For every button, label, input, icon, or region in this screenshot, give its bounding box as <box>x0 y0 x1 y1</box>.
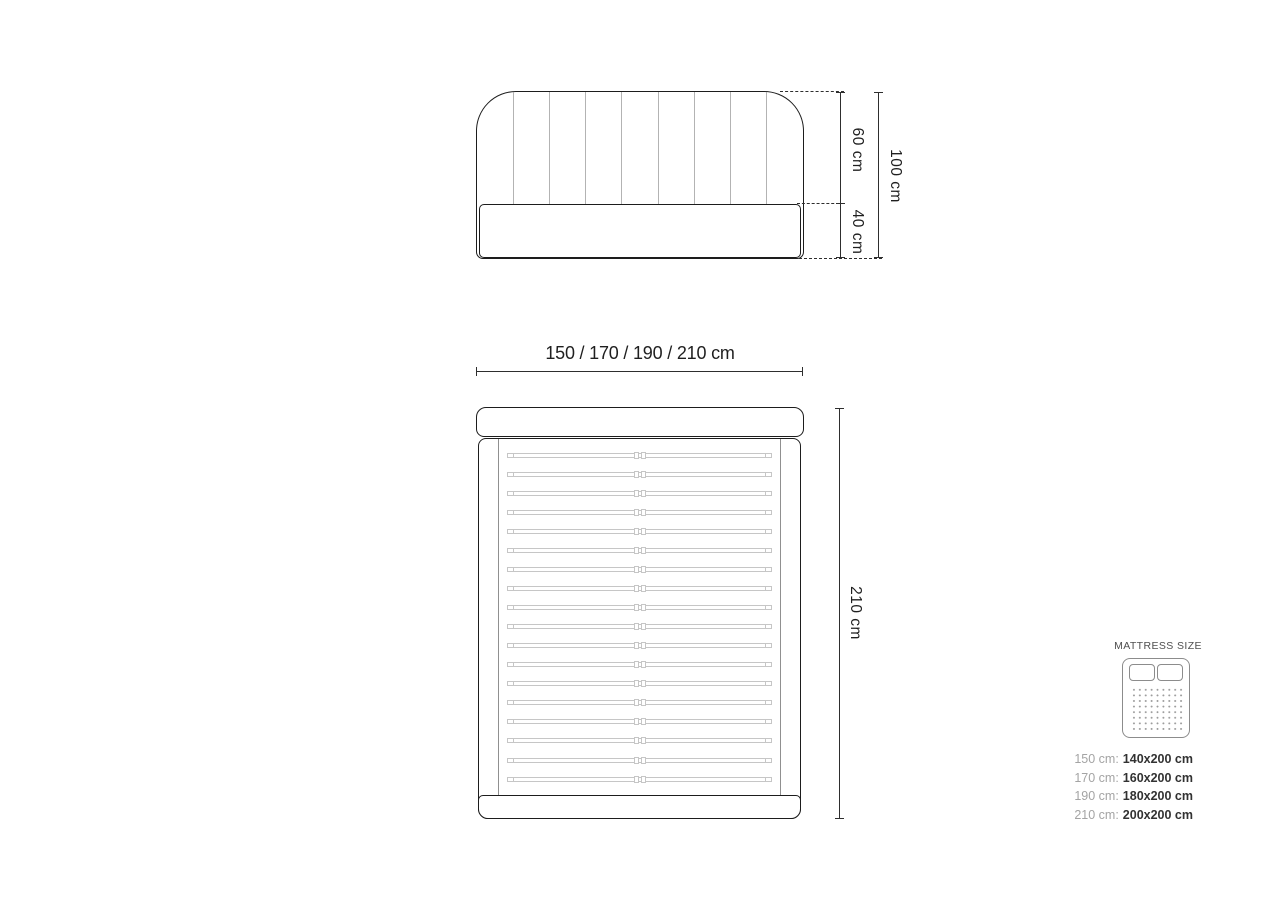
slat-center-clip <box>634 490 639 497</box>
side-rail-left <box>498 439 499 795</box>
slat-center-clip <box>634 757 639 764</box>
headboard-channel-line <box>730 92 731 205</box>
slat-center-clip <box>641 528 646 535</box>
bed-slat <box>507 758 772 763</box>
slat-center-clip <box>641 566 646 573</box>
slat-center-clip <box>634 642 639 649</box>
dimension-line-40cm <box>840 204 841 258</box>
pillow-left-icon <box>1129 664 1155 681</box>
slat-center-clip <box>641 490 646 497</box>
slat-center-clip <box>634 585 639 592</box>
extension-line-bottom <box>799 258 882 259</box>
bed-slat <box>507 624 772 629</box>
mattress-size-value: 200x200 cm <box>1123 808 1193 822</box>
extension-line-top <box>780 91 844 92</box>
slat-center-clip <box>634 718 639 725</box>
slat-center-clip <box>641 547 646 554</box>
frame-width-label: 190 cm: <box>1074 789 1118 803</box>
pillow-right-icon <box>1157 664 1183 681</box>
dimension-label-100cm: 100 cm <box>886 149 904 203</box>
headboard-front-view <box>476 91 804 259</box>
top-view-footer-bar <box>478 795 801 819</box>
top-view-headboard-bar <box>476 407 804 437</box>
slat-center-clip <box>634 471 639 478</box>
mattress-quilting-dots <box>1130 686 1183 731</box>
bed-slat <box>507 510 772 515</box>
slat-center-clip <box>634 452 639 459</box>
bed-slat <box>507 605 772 610</box>
slat-center-clip <box>641 471 646 478</box>
bed-slat <box>507 453 772 458</box>
slat-center-clip <box>641 623 646 630</box>
slat-center-clip <box>634 528 639 535</box>
side-rail-right <box>780 439 781 795</box>
mattress-size-row: 150 cm:140x200 cm <box>1040 750 1193 769</box>
bed-slat <box>507 719 772 724</box>
bed-slat <box>507 529 772 534</box>
slat-center-clip <box>634 699 639 706</box>
bed-slat <box>507 472 772 477</box>
slat-center-clip <box>641 737 646 744</box>
slat-center-clip <box>641 680 646 687</box>
frame-width-label: 210 cm: <box>1074 808 1118 822</box>
mattress-size-row: 190 cm:180x200 cm <box>1040 787 1193 806</box>
slat-center-clip <box>641 757 646 764</box>
bed-slat <box>507 548 772 553</box>
bed-slat <box>507 662 772 667</box>
slat-center-clip <box>641 509 646 516</box>
headboard-base <box>479 204 801 258</box>
slat-center-clip <box>634 566 639 573</box>
slat-center-clip <box>634 680 639 687</box>
bed-dimensions-diagram: 60 cm 40 cm 100 cm 150 / 170 / 190 / 210… <box>0 0 1280 905</box>
bed-slat <box>507 491 772 496</box>
headboard-channel-line <box>549 92 550 205</box>
mattress-size-value: 160x200 cm <box>1123 771 1193 785</box>
slat-center-clip <box>634 509 639 516</box>
bed-slat <box>507 681 772 686</box>
bed-slat <box>507 586 772 591</box>
headboard-channel-line <box>694 92 695 205</box>
slat-area <box>507 439 772 818</box>
frame-width-label: 150 cm: <box>1074 752 1118 766</box>
mattress-size-value: 180x200 cm <box>1123 789 1193 803</box>
slat-center-clip <box>641 642 646 649</box>
slat-center-clip <box>641 661 646 668</box>
mattress-size-title: MATTRESS SIZE <box>1098 640 1218 652</box>
slat-center-clip <box>634 604 639 611</box>
dimension-line-210cm <box>839 408 840 819</box>
slat-center-clip <box>634 776 639 783</box>
mattress-icon <box>1122 658 1190 738</box>
slat-center-clip <box>641 585 646 592</box>
bed-slat <box>507 738 772 743</box>
bed-slat <box>507 567 772 572</box>
slat-center-clip <box>634 623 639 630</box>
bed-slat <box>507 643 772 648</box>
slat-center-clip <box>641 776 646 783</box>
headboard-channel-line <box>658 92 659 205</box>
slat-center-clip <box>641 718 646 725</box>
mattress-size-value: 140x200 cm <box>1123 752 1193 766</box>
top-view-bed-frame <box>478 438 801 819</box>
headboard-channel-line <box>766 92 767 205</box>
dimension-label-210cm: 210 cm <box>846 586 864 640</box>
mattress-size-row: 210 cm:200x200 cm <box>1040 806 1193 825</box>
dimension-line-60cm <box>840 92 841 204</box>
dimension-label-60cm: 60 cm <box>848 128 866 173</box>
slat-center-clip <box>641 452 646 459</box>
slat-center-clip <box>634 661 639 668</box>
bed-slat <box>507 777 772 782</box>
mattress-size-table: 150 cm:140x200 cm170 cm:160x200 cm190 cm… <box>1040 750 1193 824</box>
dimension-line-100cm <box>878 92 879 258</box>
slat-center-clip <box>634 547 639 554</box>
headboard-channel-line <box>513 92 514 205</box>
headboard-channel-line <box>585 92 586 205</box>
slat-center-clip <box>641 604 646 611</box>
headboard-channel-line <box>621 92 622 205</box>
bed-slat <box>507 700 772 705</box>
width-dimension-line <box>476 371 803 372</box>
frame-width-label: 170 cm: <box>1074 771 1118 785</box>
dimension-label-40cm: 40 cm <box>848 210 866 255</box>
width-dimension-label: 150 / 170 / 190 / 210 cm <box>476 343 804 364</box>
slat-center-clip <box>634 737 639 744</box>
slat-center-clip <box>641 699 646 706</box>
mattress-size-row: 170 cm:160x200 cm <box>1040 769 1193 788</box>
